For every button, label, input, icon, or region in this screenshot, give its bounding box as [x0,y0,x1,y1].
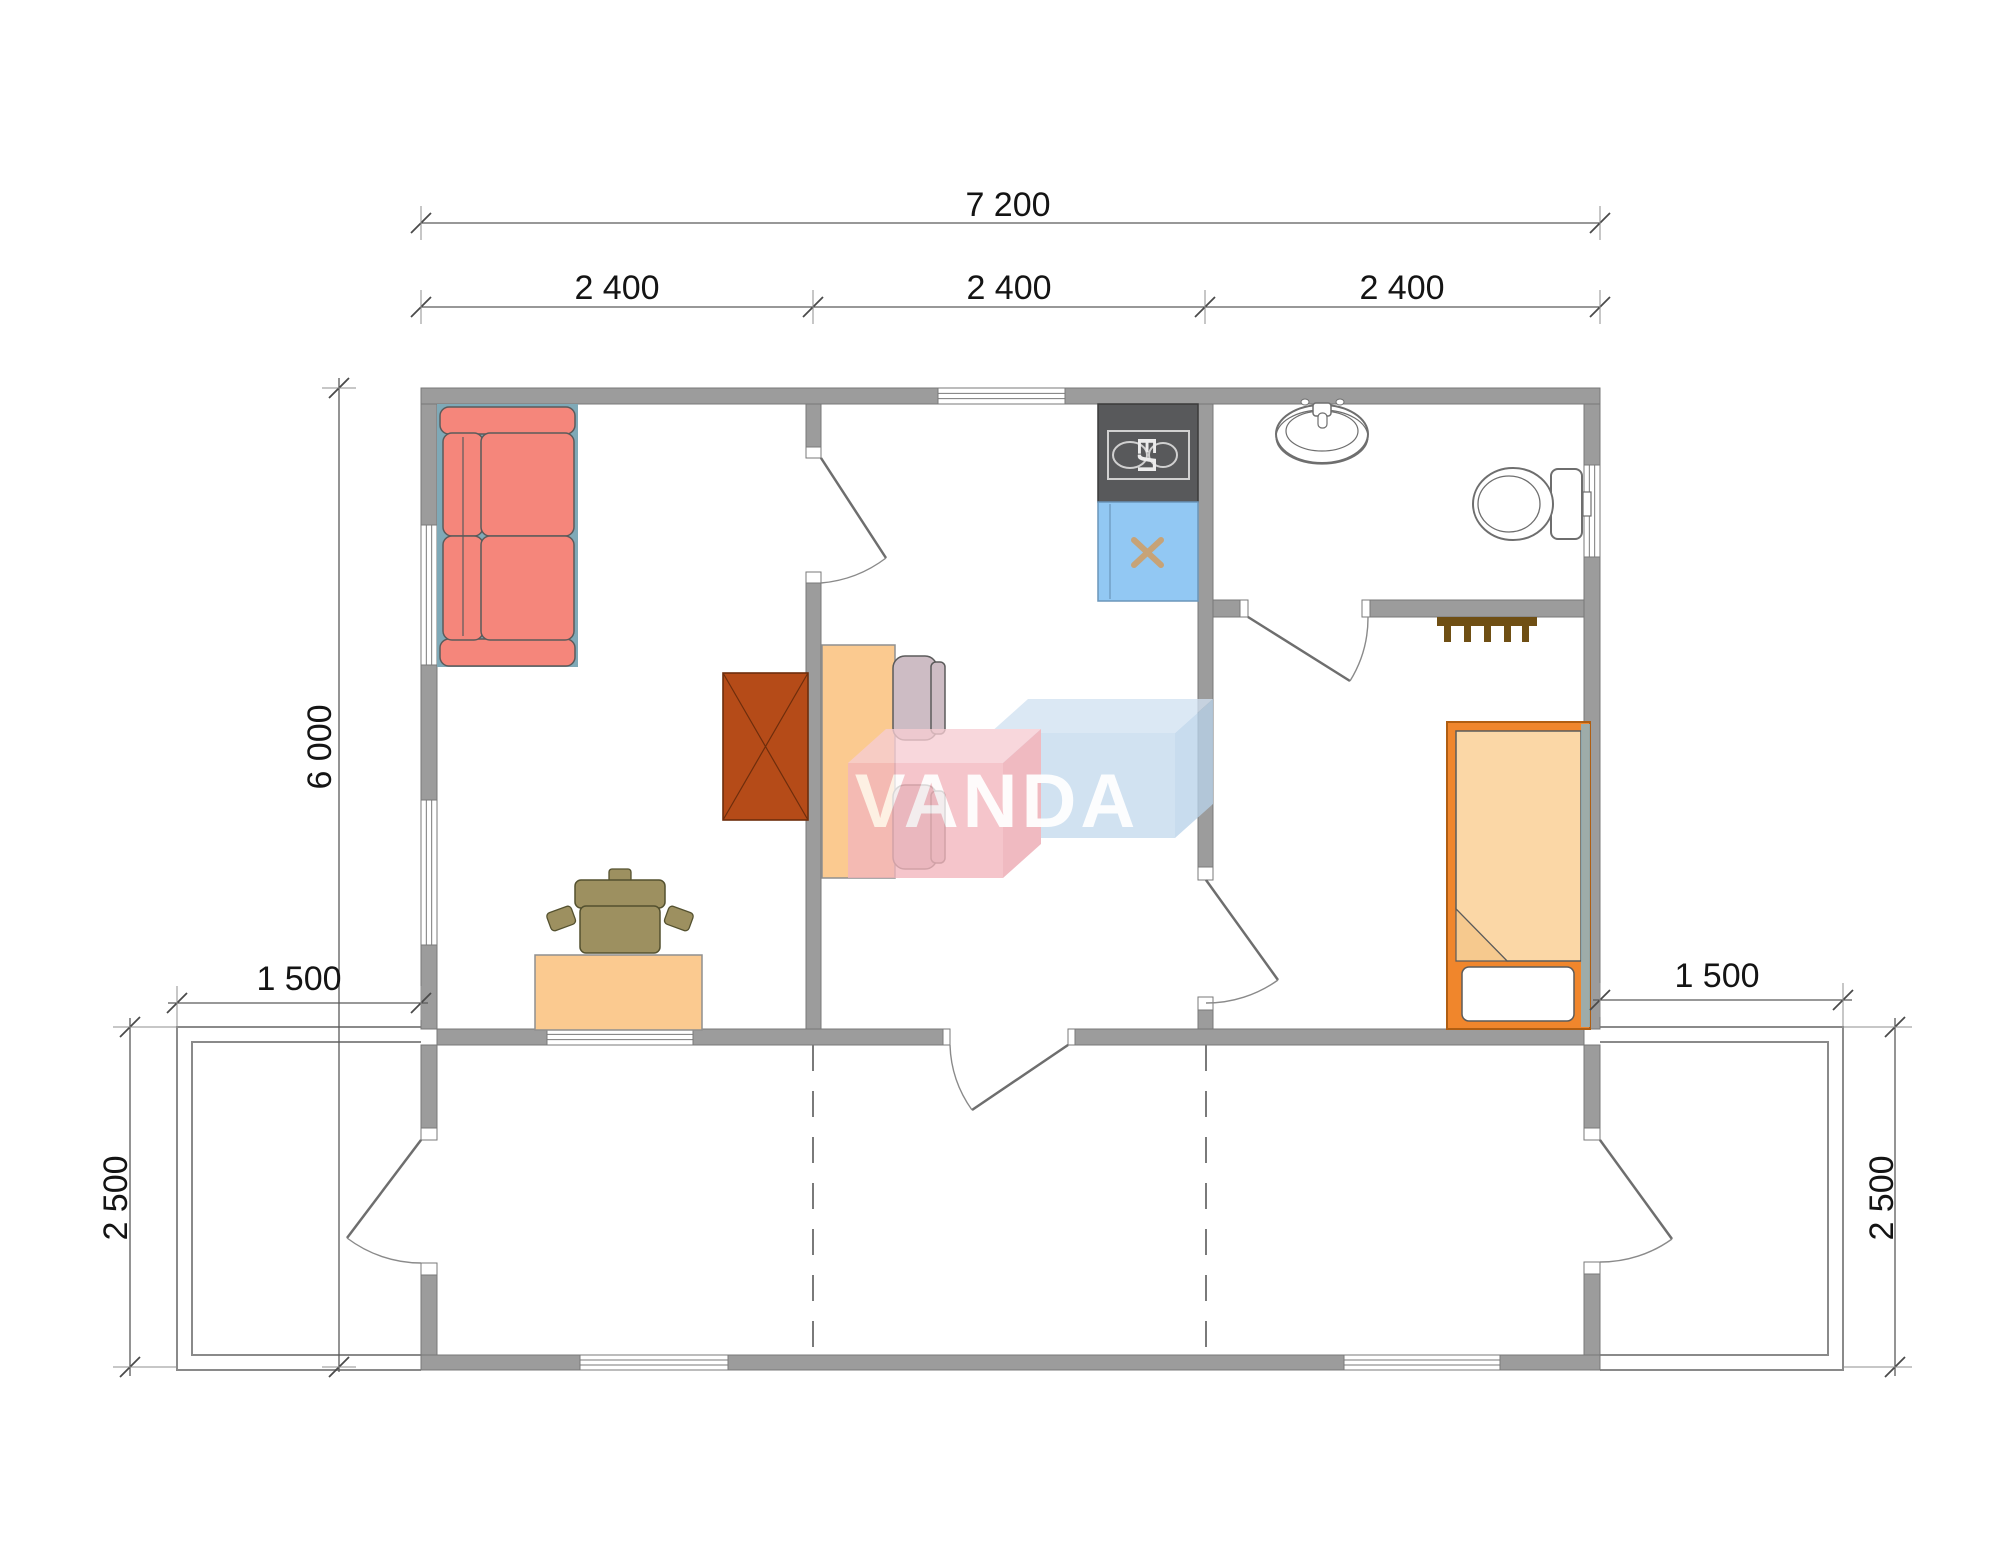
terrace-right-outer-rail [1600,1027,1843,1370]
dim-top-bays-label: 2 400 [1359,269,1444,307]
dim-left-terrace-width-label: 1 500 [256,960,341,998]
desk-chair-seat [580,906,660,953]
dim-right-terrace-width: 1 500 [1590,957,1853,1017]
window-veranda-east [1344,1355,1500,1370]
door-veranda-right-swing-arc [1600,1239,1672,1262]
floor-plan-svg: ЕЛ7 2002 4002 4002 4006 0001 5001 5002 5… [0,0,2000,1563]
bed-blanket [1456,731,1581,961]
door-veranda-left [347,1140,421,1263]
desk-chair-back [575,880,665,908]
dim-right-terrace-width-label: 1 500 [1674,957,1759,995]
desk-chair-arm-left [546,905,577,932]
coat-rack-hook [1444,626,1451,642]
door-veranda-left-swing-arc [347,1238,421,1263]
washbasin-handle-dot [1336,399,1344,405]
door-main-entrance [950,1045,1068,1110]
washbasin-faucet-spout [1318,413,1327,428]
window-living-left-lower-frame [421,800,437,945]
terrace-right-inner-rail [1600,1042,1828,1355]
door-jamb [943,1029,950,1045]
door-main-entrance-swing-arc [950,1045,972,1110]
sofa-seat-lower [481,536,574,640]
dim-left-terrace-width: 1 500 [167,960,431,1020]
wall-bottom-east [1075,1029,1584,1045]
desk-chair-arm-right [663,905,694,932]
door-bedroom-leaf [1206,880,1278,980]
washbasin-handle-dot [1301,399,1309,405]
door-jamb [1068,1029,1075,1045]
coat-rack-hook [1464,626,1471,642]
sofa-seat-upper [481,433,574,536]
wall-veranda-bottom-b [728,1355,1344,1370]
door-veranda-right [1600,1140,1672,1262]
dim-top-bays-label: 2 400 [966,269,1051,307]
window-living-left-upper [421,525,437,665]
wall-veranda-left-a [421,1045,437,1128]
toilet-tank [1551,469,1582,539]
window-living-bottom [547,1029,693,1045]
door-main-entrance-leaf [972,1045,1068,1110]
desk [535,955,702,1030]
door-jamb [1240,600,1248,617]
wall-partition1-a [806,404,821,450]
door-jamb [421,1128,437,1140]
dining-chair-1-back [931,662,945,734]
wall-veranda-right-b [1584,1274,1600,1355]
door-bedroom [1206,880,1278,1003]
dim-left-terrace-depth: 2 500 [97,1017,147,1377]
window-living-left-lower [421,800,437,945]
sofa-armrest-bottom [440,639,575,666]
bed-wall-gap-strip [1581,724,1590,1027]
door-living-kitchen-leaf [821,458,886,558]
wall-partition2-b [1198,1010,1213,1029]
door-living-kitchen-swing-arc [821,558,886,583]
door-bathroom-swing-arc [1350,617,1368,681]
coat-rack-hook [1522,626,1529,642]
window-kitchen-top [938,388,1065,404]
bed-pillow [1462,967,1574,1021]
door-jamb [1198,867,1213,880]
window-living-bottom-frame [547,1029,693,1045]
window-veranda-east-frame [1344,1355,1500,1370]
window-kitchen-top-frame [938,388,1065,404]
door-jamb [806,572,821,583]
wall-veranda-left-b [421,1275,437,1355]
dim-top-total: 7 200 [411,186,1610,240]
wall-veranda-bottom-c [1500,1355,1600,1370]
stove-label: ЕЛ [1132,437,1162,473]
coat-rack-hook [1504,626,1511,642]
dim-right-terrace-depth: 2 500 [1863,1017,1912,1377]
door-jamb [1584,1262,1600,1274]
door-jamb [1362,600,1370,617]
window-living-left-upper-frame [421,525,437,665]
watermark-blue-top [990,699,1213,733]
door-veranda-left-leaf [347,1140,421,1238]
dim-top-bays: 2 4002 4002 400 [411,269,1610,324]
toilet-flush-button [1583,492,1591,516]
dim-top-total-label: 7 200 [965,186,1050,224]
terrace-left-outer-rail [177,1027,421,1370]
wall-bathroom-b [1370,600,1584,617]
coat-rack-hook [1484,626,1491,642]
door-living-kitchen [821,458,886,583]
door-bathroom [1248,617,1368,681]
terrace-left-inner-rail [192,1042,421,1355]
dim-left-height-label: 6 000 [301,704,339,789]
wall-veranda-right-a [1584,1045,1600,1128]
wall-bathroom-a [1213,600,1240,617]
door-jamb [421,1263,437,1275]
door-bathroom-leaf [1248,617,1350,681]
brand-watermark-text: VANDA [855,759,1140,844]
dim-top-bays-label: 2 400 [574,269,659,307]
window-veranda-west [580,1355,728,1370]
dim-left-terrace-depth-label: 2 500 [97,1155,135,1240]
door-jamb [1584,1128,1600,1140]
sofa-armrest-top [440,407,575,434]
door-bedroom-swing-arc [1206,980,1278,1003]
toilet-bowl [1473,468,1553,540]
door-jamb [806,447,821,458]
floor-plan-canvas: ЕЛ7 2002 4002 4002 4006 0001 5001 5002 5… [0,0,2000,1563]
wall-veranda-bottom-a [421,1355,580,1370]
window-veranda-west-frame [580,1355,728,1370]
coat-rack-bar [1437,617,1537,626]
dim-right-terrace-depth-label: 2 500 [1863,1155,1901,1240]
dim-left-height: 6 000 [301,378,356,1377]
door-veranda-right-leaf [1600,1140,1672,1239]
